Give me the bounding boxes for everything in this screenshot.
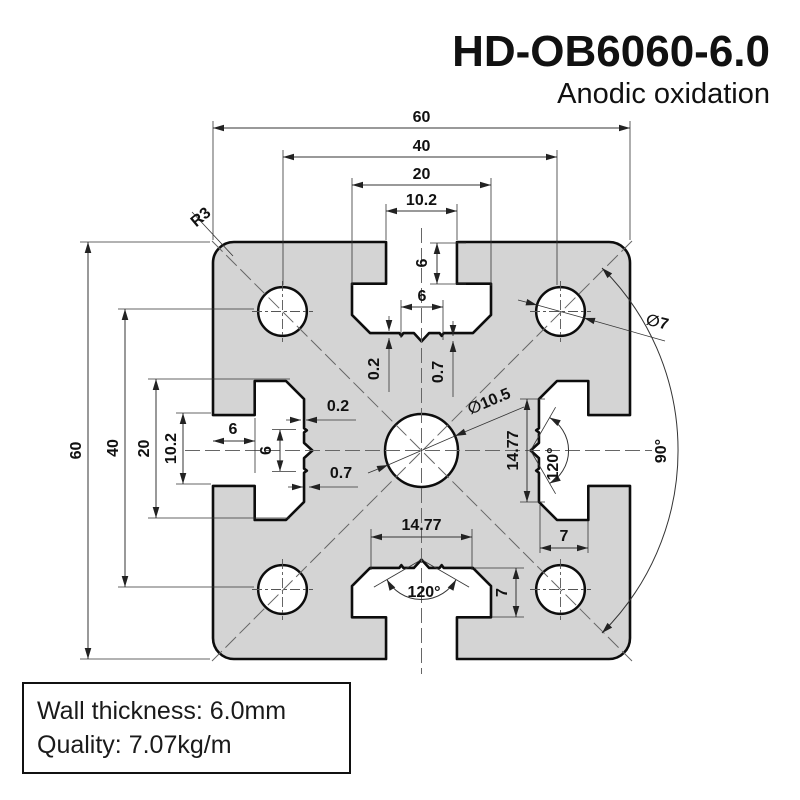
dim-left-20: 20 [136,440,153,458]
profile-drawing: 60 40 20 10.2 60 40 20 10.2 6 [0,0,800,800]
note-wall-thickness: Wall thickness: 6.0mm [37,697,349,726]
dim-right-slot-width: 14.77 [505,430,522,470]
dim-corner-radius: R3 [188,204,215,230]
dim-left-40: 40 [105,439,122,457]
dim-top-40: 40 [413,138,431,155]
dim-top-slot-depth: 6 [414,258,431,267]
dim-top-slot-width: 6 [418,288,427,305]
dim-top-60: 60 [413,109,431,126]
note-quality: Quality: 7.07kg/m [37,731,349,760]
dim-left-60: 60 [68,442,85,460]
dim-top-20: 20 [413,166,431,183]
spec-note-box: Wall thickness: 6.0mm Quality: 7.07kg/m [22,682,351,774]
dim-left-10-2: 10.2 [163,433,180,464]
dim-bottom-slot-angle: 120° [407,584,440,601]
dim-top-slot-07: 0.7 [430,361,447,383]
dim-quadrant-angle: 90° [653,439,670,463]
dim-bottom-slot-width: 14.77 [401,517,441,534]
drawing-sheet: HD-OB6060-6.0 Anodic oxidation [0,0,800,800]
dim-left-slot-width: 6 [258,446,275,455]
dim-bottom-slot-step: 7 [494,588,511,597]
dim-top-10-2: 10.2 [406,192,437,209]
dim-left-slot-depth: 6 [229,421,238,438]
dim-right-slot-step: 7 [560,528,569,545]
dim-top-slot-02: 0.2 [366,358,383,380]
dim-left-slot-07: 0.7 [330,465,352,482]
dim-right-slot-angle: 120° [545,447,562,480]
dim-left-slot-02: 0.2 [327,398,349,415]
